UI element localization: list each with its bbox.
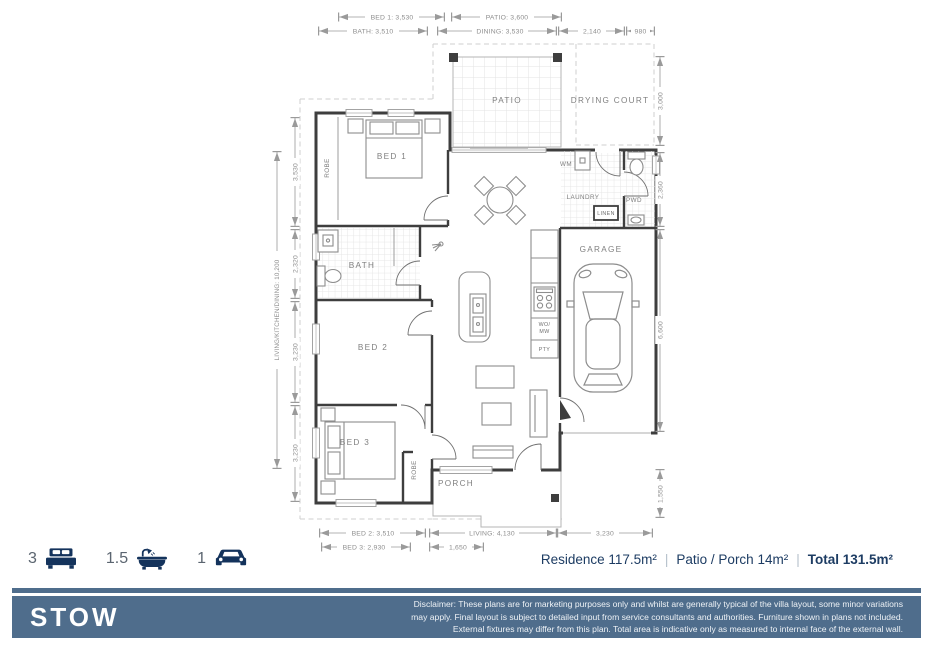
room-label-garage: GARAGE [580, 245, 623, 254]
dim-top-bath: BATH: 3,510 [353, 29, 394, 36]
room-label-laundry: LAUNDRY [567, 194, 600, 201]
dim-bottom-3230: 3,230 [596, 531, 614, 538]
porch-post [551, 494, 559, 502]
dim-right-6600: 6,600 [657, 321, 664, 339]
patio-post [449, 53, 458, 62]
baths-count: 1.5 [106, 550, 128, 568]
dim-left-2320: 2,320 [292, 255, 299, 273]
dim-right-3000: 3,000 [657, 92, 664, 110]
beds-count: 3 [28, 550, 37, 568]
label-wo: WO/ [539, 322, 551, 328]
floor-plan-svg: PATIO DRYING COURT BED 1 ROBE BATH BED 2… [0, 0, 925, 577]
room-label-patio: PATIO [492, 96, 522, 105]
stats: 3 1.5 1 [28, 548, 277, 570]
footer-bar: STOW Disclaimer: These plans are for mar… [12, 596, 921, 638]
dim-top-980: 980 [635, 29, 647, 36]
dim-right-1550: 1,550 [657, 485, 664, 503]
summary-row: 3 1.5 1 [28, 546, 893, 572]
dim-top-bed1: BED 1: 3,530 [371, 15, 414, 22]
dim-bottom-bed2: BED 2: 3,510 [352, 531, 395, 538]
residence-area: Residence 117.5m² [541, 552, 657, 567]
dim-bottom-living: LIVING: 4,130 [469, 531, 515, 538]
car-icon [215, 548, 247, 570]
room-label-drying-court: DRYING COURT [571, 96, 650, 105]
patio-post [553, 53, 562, 62]
dim-left-3230b: 3,230 [292, 444, 299, 462]
dim-left-3230a: 3,230 [292, 343, 299, 361]
separator: | [657, 552, 677, 567]
label-mw: MW [539, 329, 549, 335]
dim-right-2360: 2,360 [657, 181, 664, 199]
label-pty: PTY [539, 347, 551, 353]
label-wm: WM [560, 161, 572, 168]
dim-top-patio: PATIO: 3,600 [486, 15, 529, 22]
room-label-bed3: BED 3 [340, 438, 370, 447]
total-area: Total 131.5m² [808, 552, 893, 567]
room-label-porch: PORCH [438, 479, 474, 488]
dim-left-lkd: LIVING/KITCHEN/DINING: 10,200 [274, 259, 281, 360]
page: PATIO DRYING COURT BED 1 ROBE BATH BED 2… [0, 0, 925, 650]
dim-top-dining: DINING: 3,530 [476, 29, 523, 36]
plan-title: STOW [30, 602, 120, 633]
cars-count: 1 [197, 550, 206, 568]
room-label-pwd: PWD [626, 197, 642, 204]
separator: | [788, 552, 808, 567]
patio-porch-area: Patio / Porch 14m² [676, 552, 788, 567]
room-label-bed1: BED 1 [377, 152, 407, 161]
bath-icon [137, 548, 167, 570]
label-linen: LINEN [597, 211, 615, 217]
laundry-fixtures [575, 151, 590, 170]
dim-top-2140: 2,140 [583, 29, 601, 36]
area-summary: Residence 117.5m²|Patio / Porch 14m²|Tot… [541, 552, 893, 567]
room-label-bed2: BED 2 [358, 343, 388, 352]
dim-left-3530: 3,530 [292, 163, 299, 181]
footer-accent-strip [12, 588, 921, 593]
bed-icon [46, 548, 76, 570]
room-label-robe3: ROBE [411, 460, 418, 479]
disclaimer-text: Disclaimer: These plans are for marketin… [408, 598, 903, 635]
room-label-bath: BATH [349, 261, 375, 270]
room-label-robe1: ROBE [324, 158, 331, 177]
